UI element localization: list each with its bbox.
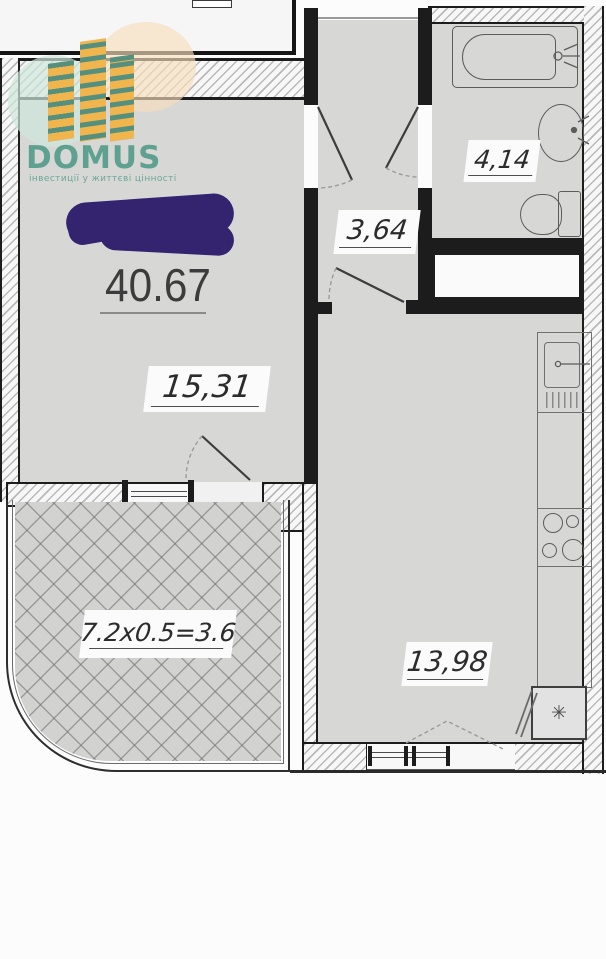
window-jamb (368, 746, 372, 766)
room-label-kitchen: 13,98 (401, 642, 492, 686)
bath-sink-icon (538, 104, 584, 162)
room-label-bathroom: 4,14 (463, 140, 540, 182)
wall-segment (418, 188, 432, 302)
room-label-hallway: 3,64 (333, 210, 420, 254)
label-underline (339, 247, 411, 248)
fridge-icon: ✳ (531, 686, 587, 740)
stove-burner (562, 539, 584, 561)
wall-segment (304, 302, 332, 314)
floor-plan: ✳ (0, 0, 606, 959)
window (367, 742, 515, 770)
window-glass-line (131, 496, 187, 497)
label-underline (151, 406, 258, 407)
toilet-tank-icon (558, 191, 581, 237)
bathtub-inner (462, 34, 556, 80)
wall-segment (304, 8, 318, 105)
wall-segment (418, 8, 432, 105)
room-area: 15,31 (161, 372, 254, 403)
counter-divider (537, 566, 592, 567)
room-area: 13,98 (405, 648, 489, 676)
counter-divider (537, 412, 592, 413)
stove-burner (542, 543, 557, 558)
room-label-living: 15,31 (143, 366, 271, 412)
storage-niche (432, 252, 582, 300)
room-area: 4,14 (473, 147, 532, 172)
wall-balcony-kitchen-divider (302, 484, 318, 742)
wall-bottom-sw (302, 742, 368, 772)
counter-divider (537, 508, 592, 509)
logo: DOMUS інвестиції у життєві цінності (0, 0, 230, 200)
plan-bottom-edge (290, 770, 606, 773)
window-mullion (412, 746, 416, 766)
label-underline (407, 679, 483, 680)
total-area-underline (100, 312, 206, 314)
stove-burner (543, 513, 563, 533)
wall-segment (304, 188, 318, 484)
building-illustration (110, 54, 134, 141)
hallway (318, 20, 418, 302)
window-jamb (446, 746, 450, 766)
window-glass-line (371, 757, 449, 758)
entry-threshold (318, 17, 418, 19)
room-label-balcony: 7.2х0.5=3.6 (79, 610, 237, 658)
wall-segment (406, 300, 582, 314)
window-mullion (404, 746, 408, 766)
brand-name: DOMUS (26, 140, 186, 176)
toilet-bowl-icon (520, 194, 562, 235)
room-area: 7.2х0.5=3.6 (79, 620, 237, 645)
label-underline (469, 175, 532, 176)
building-illustration (48, 60, 74, 142)
wall-segment (432, 238, 582, 252)
snowflake-icon: ✳ (551, 702, 567, 724)
building-illustration (80, 38, 106, 142)
window-glass-line (131, 491, 187, 492)
brand-tagline: інвестиції у життєві цінності (29, 174, 199, 184)
total-area-label: 40.67 (84, 258, 231, 312)
window-glass-line (371, 752, 449, 753)
room-area: 3,64 (346, 217, 409, 244)
stove-burner (566, 515, 579, 528)
wall-bottom-se (513, 742, 584, 772)
wall-bathroom-top (428, 6, 584, 24)
hallway-kitchen-passage (332, 302, 406, 314)
kitchen-sink-icon (544, 342, 580, 388)
label-underline (89, 648, 223, 649)
sink-drainboard (546, 392, 578, 408)
